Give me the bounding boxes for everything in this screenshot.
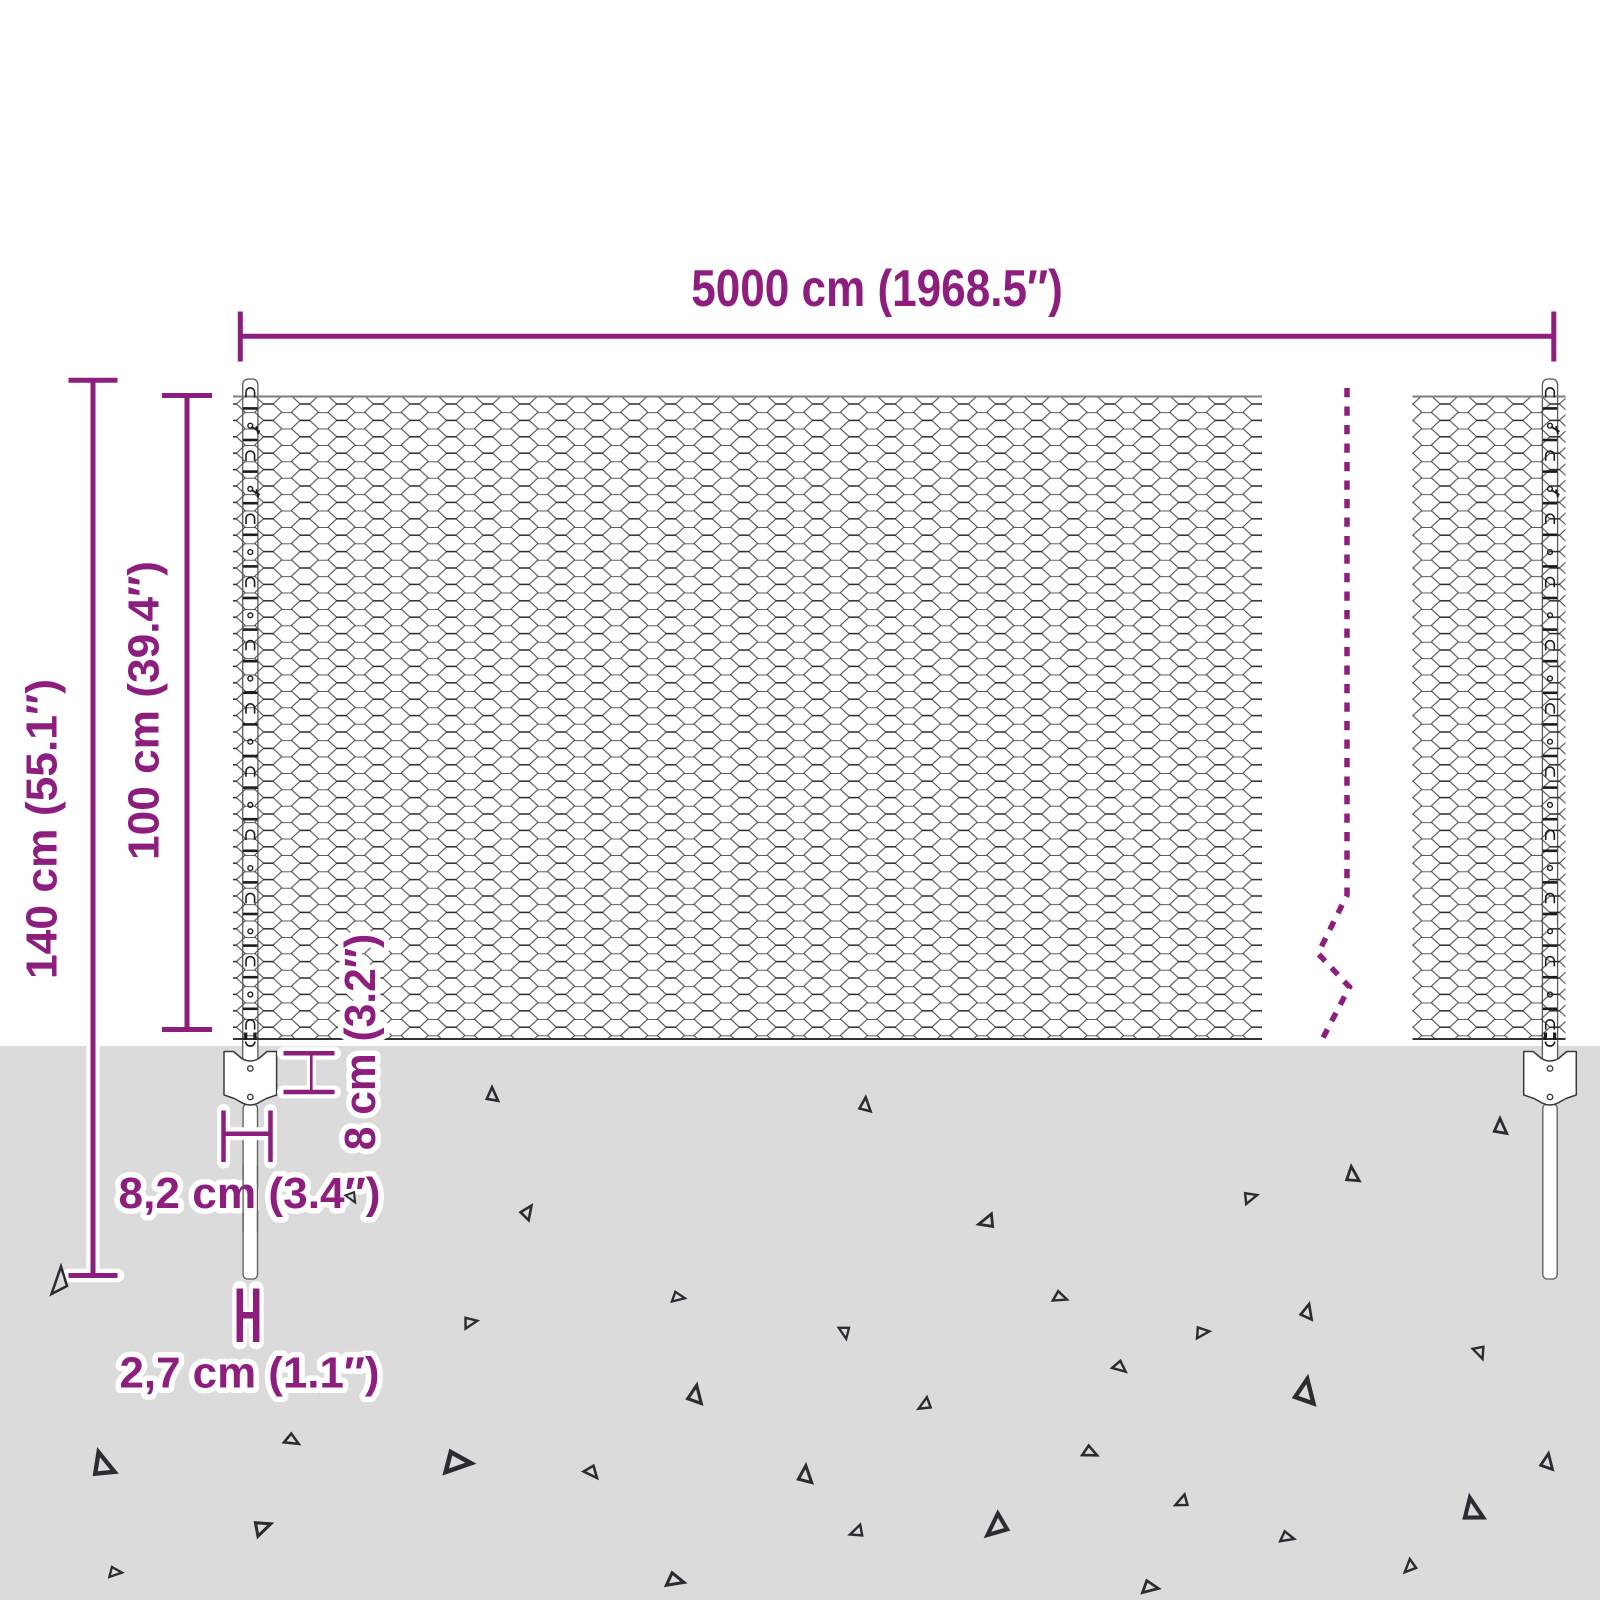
svg-text:8,2 cm (3.4″): 8,2 cm (3.4″)	[119, 1170, 381, 1218]
svg-text:5000 cm (1968.5″): 5000 cm (1968.5″)	[691, 260, 1063, 318]
svg-text:8 cm (3.2″): 8 cm (3.2″)	[337, 934, 385, 1151]
svg-text:140 cm (55.1″): 140 cm (55.1″)	[19, 679, 67, 979]
svg-text:100 cm (39.4″): 100 cm (39.4″)	[121, 561, 169, 860]
svg-text:2,7 cm (1.1″): 2,7 cm (1.1″)	[120, 1350, 380, 1398]
